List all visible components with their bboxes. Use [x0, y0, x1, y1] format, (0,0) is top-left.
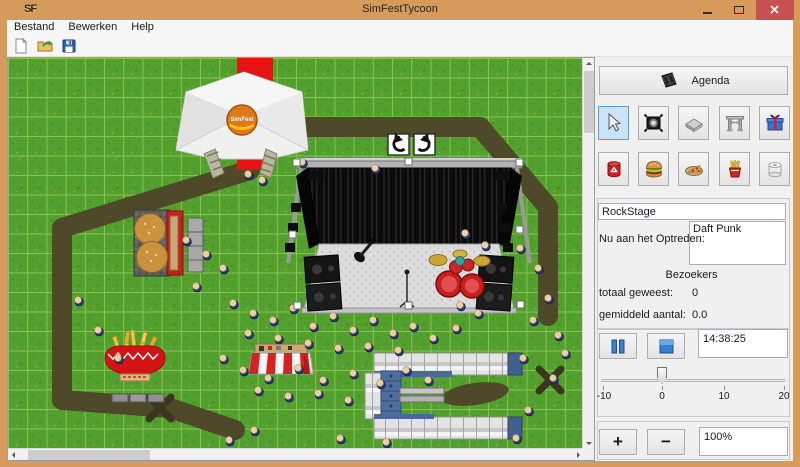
- rotate-ccw-button[interactable]: [388, 133, 409, 155]
- bench[interactable]: [112, 394, 164, 402]
- new-file-button[interactable]: [10, 35, 32, 56]
- scroll-right-icon[interactable]: [577, 452, 580, 458]
- trash-bin-icon: [603, 158, 625, 180]
- paving-tile-icon: [683, 112, 705, 134]
- pause-button[interactable]: [599, 333, 637, 359]
- vertical-scroll-thumb[interactable]: [584, 71, 594, 133]
- entrance-gate-icon: [724, 112, 746, 134]
- horizontal-scroll-thumb[interactable]: [28, 450, 150, 460]
- agenda-button[interactable]: Agenda: [599, 66, 788, 95]
- scroll-up-icon[interactable]: [586, 62, 592, 65]
- svg-text:SimFest: SimFest: [230, 117, 253, 123]
- map-panel: SimFest: [7, 57, 595, 461]
- open-file-icon: [36, 37, 54, 55]
- tool-entrance-gate-button[interactable]: [719, 106, 750, 140]
- close-icon: [756, 0, 794, 20]
- stop-button[interactable]: [647, 333, 685, 359]
- agenda-label: Agenda: [692, 75, 730, 87]
- scroll-left-icon[interactable]: [12, 452, 15, 458]
- new-file-icon: [12, 37, 30, 55]
- speed-slider-track[interactable]: [601, 379, 785, 382]
- slider-label-0: 0: [659, 391, 665, 402]
- pause-icon: [610, 339, 626, 354]
- select-cursor-icon: [603, 112, 625, 134]
- stop-icon: [659, 339, 674, 354]
- zoom-in-button[interactable]: +: [599, 429, 637, 455]
- gift-icon: [764, 112, 786, 134]
- tool-hamburger-button[interactable]: [638, 152, 669, 186]
- clock-display: 14:38:25: [698, 329, 788, 358]
- save-icon: [60, 37, 78, 55]
- slider-label-10: 10: [718, 391, 729, 402]
- rock-stage[interactable]: [285, 158, 530, 313]
- tool-toilet-roll-button[interactable]: [759, 152, 790, 186]
- maximize-icon: [734, 6, 744, 14]
- tool-paving-button[interactable]: [678, 106, 709, 140]
- slider-label-min: -10: [597, 391, 611, 402]
- tool-spotlight-button[interactable]: [638, 106, 669, 140]
- menu-bewerken[interactable]: Bewerken: [61, 20, 124, 34]
- toolstrip: [7, 34, 793, 57]
- now-performing-label: Nu aan het Optreden:: [599, 233, 705, 245]
- festival-map[interactable]: SimFest: [8, 58, 584, 449]
- titlebar[interactable]: SF SimFestTycoon: [0, 0, 800, 20]
- scroll-down-icon[interactable]: [586, 442, 592, 445]
- stage-name-input[interactable]: [598, 203, 786, 220]
- close-button[interactable]: [756, 0, 794, 20]
- burger-stand[interactable]: [134, 210, 183, 276]
- minimize-button[interactable]: [692, 0, 724, 20]
- save-file-button[interactable]: [58, 35, 80, 56]
- maximize-button[interactable]: [724, 0, 756, 20]
- average-visitors-value: 0.0: [692, 309, 707, 321]
- fries-icon: [724, 158, 746, 180]
- menu-help[interactable]: Help: [124, 20, 161, 34]
- tool-select-button[interactable]: [598, 106, 629, 140]
- zoom-level-display: 100%: [699, 427, 788, 456]
- sidebar: Agenda: [595, 57, 793, 461]
- vertical-scrollbar[interactable]: [582, 58, 594, 449]
- total-visitors-value: 0: [692, 287, 698, 299]
- slider-label-max: 20: [778, 391, 789, 402]
- slider-tick: [662, 386, 663, 390]
- total-visitors-label: totaal geweest:: [599, 287, 673, 299]
- average-visitors-label: gemiddeld aantal:: [599, 309, 686, 321]
- minimize-icon: [703, 12, 712, 14]
- tool-gift-button[interactable]: [759, 106, 790, 140]
- tool-pizza-button[interactable]: [678, 152, 709, 186]
- slider-tick: [603, 386, 604, 390]
- burger-sprite: [137, 242, 168, 273]
- slider-tick: [724, 386, 725, 390]
- menu-bestand[interactable]: Bestand: [7, 20, 61, 34]
- open-file-button[interactable]: [34, 35, 56, 56]
- hamburger-icon: [643, 158, 665, 180]
- agenda-book-icon: [658, 70, 680, 92]
- app-window: SF SimFestTycoon Bestand Bewerken Help: [0, 0, 800, 467]
- scrollbar-corner: [582, 448, 594, 460]
- horizontal-scrollbar[interactable]: [8, 448, 584, 460]
- tool-trash-bin-button[interactable]: [598, 152, 629, 186]
- tool-fries-button[interactable]: [719, 152, 750, 186]
- zoom-out-button[interactable]: −: [647, 429, 685, 455]
- pizza-icon: [683, 158, 705, 180]
- menubar: Bestand Bewerken Help: [7, 20, 793, 34]
- window-title: SimFestTycoon: [0, 3, 800, 15]
- burger-sprite: [135, 214, 166, 245]
- toilet-roll-icon: [764, 158, 786, 180]
- rotate-cw-button[interactable]: [414, 133, 435, 155]
- slider-tick: [784, 386, 785, 390]
- spotlight-icon: [643, 112, 665, 134]
- visitors-header: Bezoekers: [595, 269, 788, 281]
- client-area: Bestand Bewerken Help: [7, 20, 793, 461]
